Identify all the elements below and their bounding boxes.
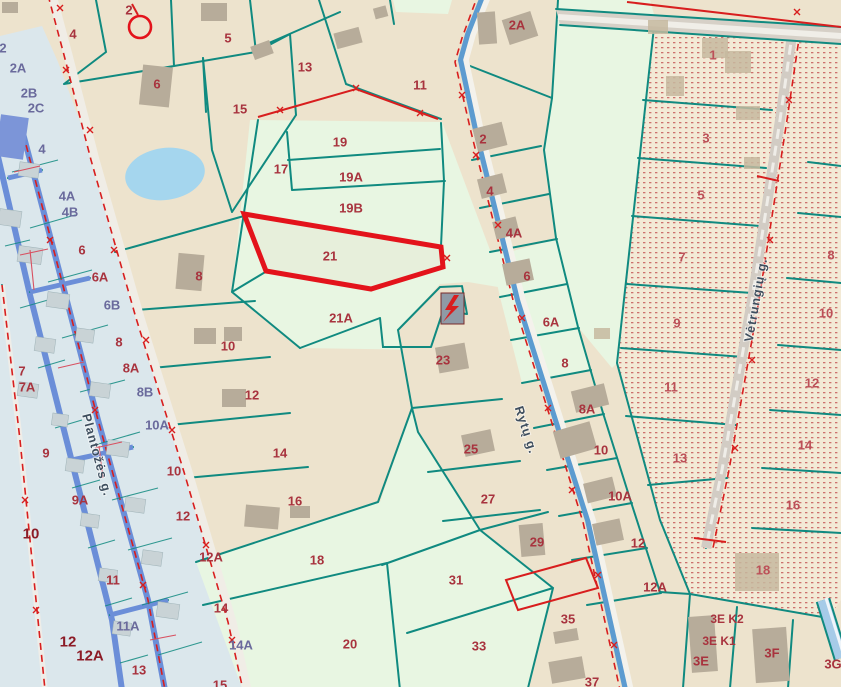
parcel-label[interactable]: 2B <box>21 86 38 101</box>
parcel-label[interactable]: 12A <box>199 550 223 565</box>
parcel-label[interactable]: 11A <box>116 619 140 634</box>
parcel-label[interactable]: 2 <box>125 3 132 18</box>
parcel-label[interactable]: 9A <box>72 493 89 508</box>
parcel-label[interactable]: 12 <box>60 634 77 651</box>
parcel-label[interactable]: 10 <box>594 443 608 458</box>
parcel-label[interactable]: 8 <box>561 356 568 371</box>
parcel-label[interactable]: 14 <box>273 446 288 461</box>
parcel-label[interactable]: 14A <box>229 638 253 653</box>
parcel-label[interactable]: 8 <box>827 248 834 263</box>
parcel-label[interactable]: 3 <box>702 131 709 146</box>
parcel-label[interactable]: 3E K2 <box>710 612 744 626</box>
parcel-label[interactable]: 2C <box>28 101 45 116</box>
parcel-label[interactable]: 3G <box>824 657 841 672</box>
parcel-label[interactable]: 9 <box>42 446 49 461</box>
parcel-label[interactable]: 17 <box>274 162 288 177</box>
parcel-label[interactable]: 12 <box>631 536 645 551</box>
parcel-label[interactable]: 10 <box>221 339 235 354</box>
parcel-label[interactable]: 18 <box>310 553 324 568</box>
parcel-label[interactable]: 3E <box>693 654 709 669</box>
parcel-label[interactable]: 12A <box>76 648 104 665</box>
parcel-label[interactable]: 15 <box>233 102 247 117</box>
base-zones-layer <box>0 0 841 687</box>
parcel-label[interactable]: 7 <box>678 250 685 265</box>
parcel-label[interactable]: 6 <box>78 243 85 258</box>
parcel-label[interactable]: 12 <box>176 509 190 524</box>
parcel-label[interactable]: 4A <box>59 189 76 204</box>
parcel-label[interactable]: 10 <box>819 306 833 321</box>
parcel-label[interactable]: 4 <box>486 184 494 199</box>
parcel-label[interactable]: 1 <box>709 48 716 63</box>
parcel-label[interactable]: 8 <box>195 269 202 284</box>
parcel-label[interactable]: 8A <box>123 361 140 376</box>
parcel-label[interactable]: 11 <box>106 573 120 588</box>
parcel-label[interactable]: 11 <box>413 78 427 93</box>
parcel-label[interactable]: 10 <box>167 464 181 479</box>
parcel-label[interactable]: 4A <box>506 226 523 241</box>
parcel-label[interactable]: 6A <box>92 270 109 285</box>
parcel-label[interactable]: 6 <box>523 269 530 284</box>
parcel-label[interactable]: 6B <box>104 298 121 313</box>
parcel-label[interactable]: 8 <box>115 335 122 350</box>
parcel-label[interactable]: 16 <box>288 494 302 509</box>
parcel-label[interactable]: 23 <box>436 353 450 368</box>
parcel-label[interactable]: 6A <box>543 315 560 330</box>
parcel-label[interactable]: 13 <box>298 60 312 75</box>
parcel-label[interactable]: 16 <box>786 498 800 513</box>
parcel-label[interactable]: 8B <box>137 385 154 400</box>
parcel-label[interactable]: 12 <box>805 376 819 391</box>
parcel-label[interactable]: 9 <box>673 316 680 331</box>
parcel-label[interactable]: 4 <box>69 27 77 42</box>
parcel-label[interactable]: 12A <box>643 580 667 595</box>
parcel-label[interactable]: 4B <box>62 205 79 220</box>
parcel-label[interactable]: 3E K1 <box>702 634 736 648</box>
parcel-label[interactable]: 14 <box>214 601 229 616</box>
parcel-label[interactable]: 6 <box>153 77 160 92</box>
parcel-label[interactable]: 15 <box>213 678 227 687</box>
transformer-icon[interactable] <box>441 293 464 324</box>
parcel-label[interactable]: 13 <box>673 451 687 466</box>
parcel-label[interactable]: 10 <box>23 526 40 543</box>
cadastral-map-canvas[interactable]: 42561315112A171919A19B2121A244A66A88A101… <box>0 0 841 687</box>
parcel-label[interactable]: 25 <box>464 442 478 457</box>
parcel-label[interactable]: 7 <box>18 364 25 379</box>
parcel-label[interactable]: 14 <box>798 438 813 453</box>
parcel-label[interactable]: 33 <box>472 639 486 654</box>
parcel-label[interactable]: 19 <box>333 135 347 150</box>
parcel-label[interactable]: 37 <box>585 675 599 687</box>
parcel-label[interactable]: 10A <box>145 418 169 433</box>
parcel-label[interactable]: 5 <box>224 31 231 46</box>
parcel-label[interactable]: 2 <box>479 132 486 147</box>
cadastral-map[interactable]: 42561315112A171919A19B2121A244A66A88A101… <box>0 0 841 687</box>
parcel-label[interactable]: 19A <box>339 170 363 185</box>
parcel-label[interactable]: 19B <box>339 201 363 216</box>
parcel-label[interactable]: 7A <box>19 380 36 395</box>
mint-top-sliver <box>393 0 452 14</box>
parcel-label[interactable]: 29 <box>530 535 544 550</box>
parcel-label[interactable]: 20 <box>343 637 357 652</box>
parcel-label[interactable]: 21A <box>329 311 353 326</box>
parcel-label[interactable]: 18 <box>756 563 770 578</box>
parcel-label[interactable]: 8A <box>579 402 596 417</box>
parcel-label[interactable]: 31 <box>449 573 463 588</box>
parcel-label[interactable]: 11 <box>664 380 678 395</box>
parcel-label[interactable]: 2A <box>10 61 27 76</box>
parcel-label[interactable]: 5 <box>697 188 704 203</box>
parcel-label[interactable]: 10A <box>608 489 632 504</box>
parcel-label[interactable]: 2A <box>509 18 526 33</box>
parcel-label[interactable]: 3F <box>764 646 779 661</box>
parcel-label[interactable]: 35 <box>561 612 575 627</box>
parcel-label[interactable]: 13 <box>132 663 146 678</box>
parcel-label[interactable]: 21 <box>323 249 337 264</box>
parcel-label[interactable]: 4 <box>38 142 46 157</box>
parcel-label[interactable]: 2 <box>0 41 7 56</box>
parcel-label[interactable]: 27 <box>481 492 495 507</box>
parcel-label[interactable]: 12 <box>245 388 259 403</box>
